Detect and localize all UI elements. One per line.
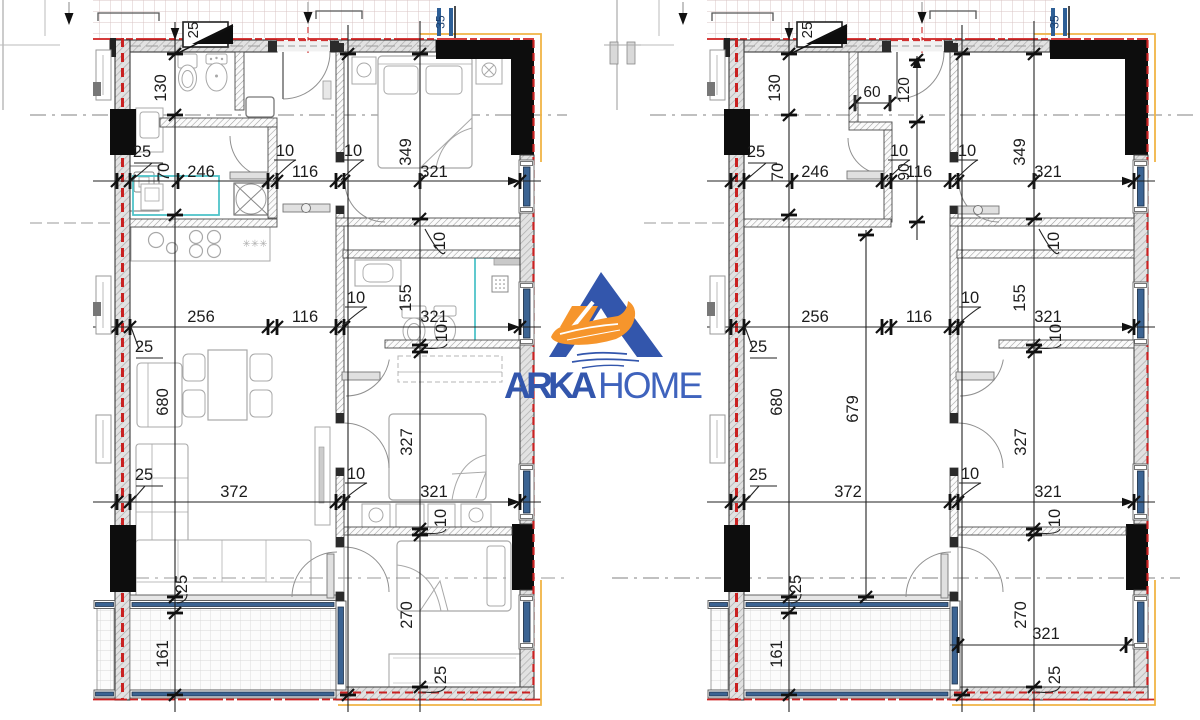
svg-text:25: 25 bbox=[749, 338, 767, 356]
svg-text:161: 161 bbox=[768, 640, 786, 668]
svg-text:25: 25 bbox=[432, 666, 450, 684]
svg-text:HOME: HOME bbox=[598, 365, 703, 406]
svg-text:155: 155 bbox=[397, 284, 415, 312]
svg-text:10: 10 bbox=[1045, 232, 1063, 250]
svg-text:372: 372 bbox=[220, 483, 248, 501]
svg-text:10: 10 bbox=[1046, 509, 1064, 527]
svg-text:25: 25 bbox=[173, 575, 191, 593]
svg-text:679: 679 bbox=[844, 395, 862, 423]
svg-text:10: 10 bbox=[276, 142, 294, 160]
svg-text:70: 70 bbox=[769, 163, 787, 181]
svg-text:161: 161 bbox=[154, 640, 172, 668]
svg-text:349: 349 bbox=[397, 138, 415, 166]
svg-text:25: 25 bbox=[185, 22, 202, 39]
svg-text:680: 680 bbox=[768, 388, 786, 416]
svg-text:116: 116 bbox=[292, 308, 318, 326]
svg-text:155: 155 bbox=[1011, 284, 1029, 312]
svg-text:25: 25 bbox=[747, 143, 765, 161]
svg-text:10: 10 bbox=[344, 142, 362, 160]
svg-text:256: 256 bbox=[801, 308, 829, 326]
svg-text:321: 321 bbox=[420, 163, 448, 181]
svg-text:10: 10 bbox=[961, 465, 979, 483]
svg-text:321: 321 bbox=[1034, 483, 1062, 501]
svg-text:90: 90 bbox=[896, 163, 913, 181]
svg-text:10: 10 bbox=[958, 142, 976, 160]
svg-text:327: 327 bbox=[398, 428, 416, 456]
svg-text:256: 256 bbox=[187, 308, 215, 326]
svg-text:60: 60 bbox=[863, 84, 881, 101]
svg-text:25: 25 bbox=[133, 143, 151, 161]
svg-text:327: 327 bbox=[1012, 428, 1030, 456]
svg-text:25: 25 bbox=[135, 466, 153, 484]
svg-text:70: 70 bbox=[155, 163, 173, 181]
svg-text:10: 10 bbox=[347, 465, 365, 483]
svg-text:246: 246 bbox=[187, 163, 215, 181]
svg-text:✳✳✳: ✳✳✳ bbox=[242, 239, 267, 250]
svg-text:246: 246 bbox=[801, 163, 829, 181]
svg-text:25: 25 bbox=[799, 22, 816, 39]
svg-text:10: 10 bbox=[433, 324, 451, 342]
svg-text:10: 10 bbox=[431, 232, 449, 250]
svg-text:25: 25 bbox=[1046, 666, 1064, 684]
svg-text:120: 120 bbox=[896, 77, 913, 103]
svg-text:25: 25 bbox=[135, 338, 153, 356]
svg-text:25: 25 bbox=[787, 575, 805, 593]
svg-text:ARKA: ARKA bbox=[504, 365, 597, 406]
svg-text:321: 321 bbox=[1034, 163, 1062, 181]
svg-text:321: 321 bbox=[420, 308, 448, 326]
svg-text:10: 10 bbox=[432, 509, 450, 527]
svg-text:321: 321 bbox=[1034, 308, 1062, 326]
svg-text:372: 372 bbox=[834, 483, 862, 501]
svg-text:116: 116 bbox=[906, 308, 932, 326]
svg-text:321: 321 bbox=[1032, 625, 1060, 643]
svg-text:25: 25 bbox=[749, 466, 767, 484]
svg-text:130: 130 bbox=[152, 74, 170, 102]
svg-text:35: 35 bbox=[1048, 15, 1062, 29]
svg-text:116: 116 bbox=[292, 163, 318, 181]
svg-text:321: 321 bbox=[420, 483, 448, 501]
svg-text:270: 270 bbox=[1012, 601, 1030, 629]
svg-text:10: 10 bbox=[890, 142, 908, 160]
svg-text:680: 680 bbox=[154, 388, 172, 416]
svg-text:349: 349 bbox=[1011, 138, 1029, 166]
svg-text:10: 10 bbox=[1047, 324, 1065, 342]
svg-text:10: 10 bbox=[961, 289, 979, 307]
svg-text:130: 130 bbox=[766, 74, 784, 102]
svg-text:270: 270 bbox=[398, 601, 416, 629]
svg-text:10: 10 bbox=[347, 289, 365, 307]
svg-text:35: 35 bbox=[434, 15, 448, 29]
